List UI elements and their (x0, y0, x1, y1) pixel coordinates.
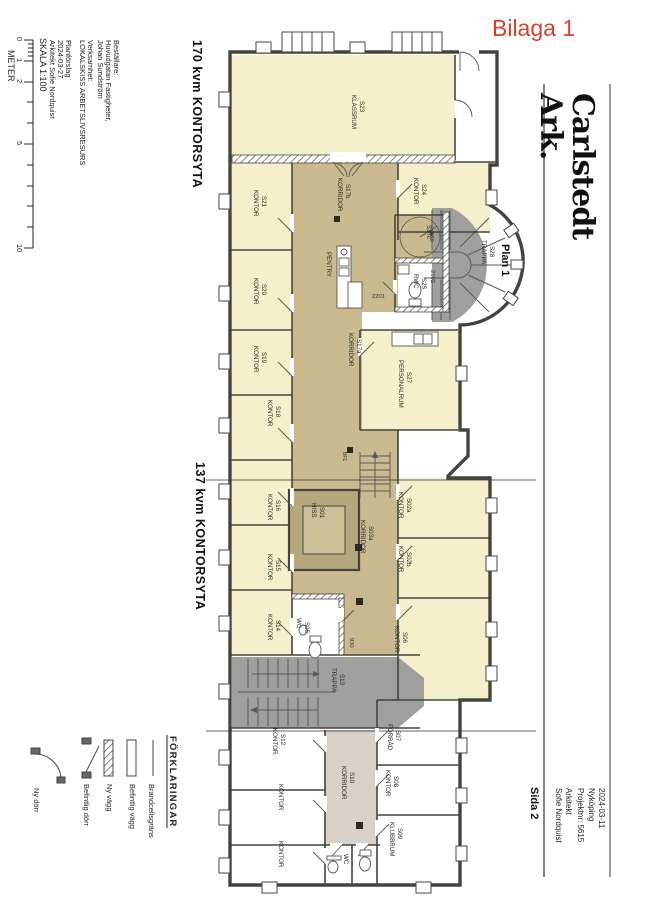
room-id: S13 (338, 674, 345, 686)
room-name: KONTOR (266, 494, 273, 521)
room-name: KONTOR (397, 492, 404, 519)
info-line: 2024-03-11 (597, 788, 606, 829)
room-name: KONTOR (412, 178, 419, 205)
room-id: S16 (274, 500, 281, 512)
room-id: S01 (318, 507, 325, 519)
room-name: TRAPPA (480, 240, 487, 265)
legend-item-label: Ny vägg (105, 784, 114, 812)
info-line: Arkitekt (564, 788, 573, 815)
room-id: S12 (279, 734, 286, 746)
info-line: Sofie Nordquist (554, 788, 563, 843)
room-id: S02a (405, 498, 412, 513)
toilet-bowl (360, 857, 371, 871)
title-block: Carlstedt Ark. Plan 1 Sida 2 2024-03-11 … (499, 84, 610, 877)
scale-tick: 10 (15, 244, 24, 252)
room-id: S07 (394, 730, 401, 742)
room-id: S18 (274, 406, 281, 418)
room-name: KONTOR (384, 770, 391, 797)
room-id: S21 (260, 196, 267, 208)
room-id: S24 (420, 184, 427, 196)
room-id: S03a (367, 526, 374, 541)
area-labels: 170 kvm KONTORSYTA 137 kvm KONTORSYTA (190, 40, 207, 610)
legend-item-label: Befintlig vägg (128, 784, 137, 829)
room-name: KONTOR (266, 614, 273, 641)
dimension: 930 (348, 638, 354, 648)
legend-new-wall-symbol (104, 740, 113, 776)
room-id: S27 (405, 372, 412, 384)
project-info-line: Arkitekt Sofie Nordquist (48, 40, 57, 119)
toilet-tank (360, 850, 371, 856)
room-name: KONTOR (393, 626, 400, 653)
info-line: Projektnr: 5615 (576, 788, 585, 843)
room-name: TRAPPA (330, 668, 337, 693)
drawing-sheet: S23 KLASSRUM S21 KONTOR S17b KORRIDOR S2… (0, 0, 651, 915)
scale-bar: SKALA 1:100 METER 0 1 2 5 10 (6, 37, 48, 252)
bilaga-annotation: Bilaga 1 (492, 15, 575, 41)
legend: FÖRKLARINGAR Brandcellsgräns Befintlig v… (31, 735, 178, 838)
washstand (327, 856, 341, 860)
room-name: KONTOR (277, 784, 284, 811)
room-name: KORRIDOR (359, 520, 366, 554)
scale-tick: 2 (15, 79, 24, 83)
floor-plan-svg: S23 KLASSRUM S21 KONTOR S17b KORRIDOR S2… (0, 0, 651, 915)
room-id: S20 (260, 284, 267, 296)
plan-label: Plan 1 (499, 244, 511, 276)
room-id: S23 (358, 101, 365, 113)
legend-existing-door-symbol (82, 738, 99, 778)
toilet-bowl (309, 642, 321, 658)
room-id: S25 (420, 278, 427, 290)
dimension: 2102 (429, 270, 435, 283)
legend-item-label: Brandcellsgräns (147, 784, 156, 838)
room-name: KONTOR (271, 728, 278, 755)
legend-item-label: Befintlig dörr (82, 784, 91, 827)
project-info-line: LOKALSKISS ARBETSLIVSRESURS (78, 40, 87, 165)
room-id: S17b (344, 184, 351, 199)
room-name: HISS (310, 503, 317, 517)
room-id: S14 (274, 620, 281, 632)
room-name: KONTOR (266, 400, 273, 427)
area-label-137: 137 kvm KONTORSYTA (193, 462, 207, 610)
dimension: 560 (428, 232, 434, 242)
room-name: KORRIDOR (340, 766, 347, 800)
room-id: S10 (348, 772, 355, 784)
room-id: S19 (260, 352, 267, 364)
legend-item-label: Ny dörr (32, 788, 41, 813)
toilet-tank (409, 299, 421, 306)
room-name: KONTOR (397, 546, 404, 573)
legend-title: FÖRKLARINGAR (167, 736, 178, 827)
room-id: S28 (488, 246, 495, 258)
room-name: PENTRY (325, 252, 332, 277)
toilet-tank (310, 636, 321, 642)
room-id: S05 (303, 622, 310, 634)
dimension: 2201 (372, 294, 385, 300)
info-line: Nyköping (587, 788, 596, 821)
logo-line2: Ark. (533, 92, 568, 159)
room-name: KLUBBRUM (388, 822, 395, 856)
logo-line1: Carlstedt (565, 93, 600, 240)
room-name: KORRIDOR (336, 178, 343, 212)
scale-unit: METER (6, 50, 16, 82)
page-label: Sida 2 (528, 787, 540, 819)
project-info: Beställare: Huvudgatan Fastigheter, Joha… (48, 40, 121, 165)
room-name: WC (342, 854, 349, 865)
legend-existing-wall-symbol (127, 740, 136, 776)
scale-tick: 0 (15, 37, 24, 41)
room-id: S15 (274, 560, 281, 572)
room-id: S17a (355, 339, 362, 354)
area-label-170: 170 kvm KONTORSYTA (190, 40, 204, 188)
room-name: RWC (412, 274, 419, 289)
scale-tick: 1 (15, 58, 24, 62)
sink (398, 265, 409, 274)
room-name: KONTOR (266, 554, 273, 581)
scale-tick: 5 (15, 141, 24, 145)
room-name: KONTOR (252, 190, 259, 217)
room-name: KLASSRUM (350, 95, 357, 129)
room-name: KONTOR (252, 278, 259, 305)
room-id: S08 (392, 776, 399, 788)
room-name: WC (295, 618, 302, 629)
room-id: S09 (396, 828, 403, 840)
room-id: S02b (405, 552, 412, 567)
legend-new-door-symbol (31, 748, 65, 783)
room-name: KONTOR (252, 346, 259, 373)
sink (328, 861, 338, 873)
room-name: FÖRRÅD (386, 724, 393, 751)
room-id: S06 (401, 632, 408, 644)
pentry-appliance (348, 282, 362, 308)
scale-label: SKALA 1:100 (38, 38, 48, 92)
dimension: BF1 (341, 452, 347, 461)
room-name: KONTOR (277, 841, 284, 868)
room-name: KORRIDOR (347, 333, 354, 367)
project-info-line: Johan Sundström (96, 40, 105, 99)
room-name: PERSONALRUM (397, 360, 404, 408)
